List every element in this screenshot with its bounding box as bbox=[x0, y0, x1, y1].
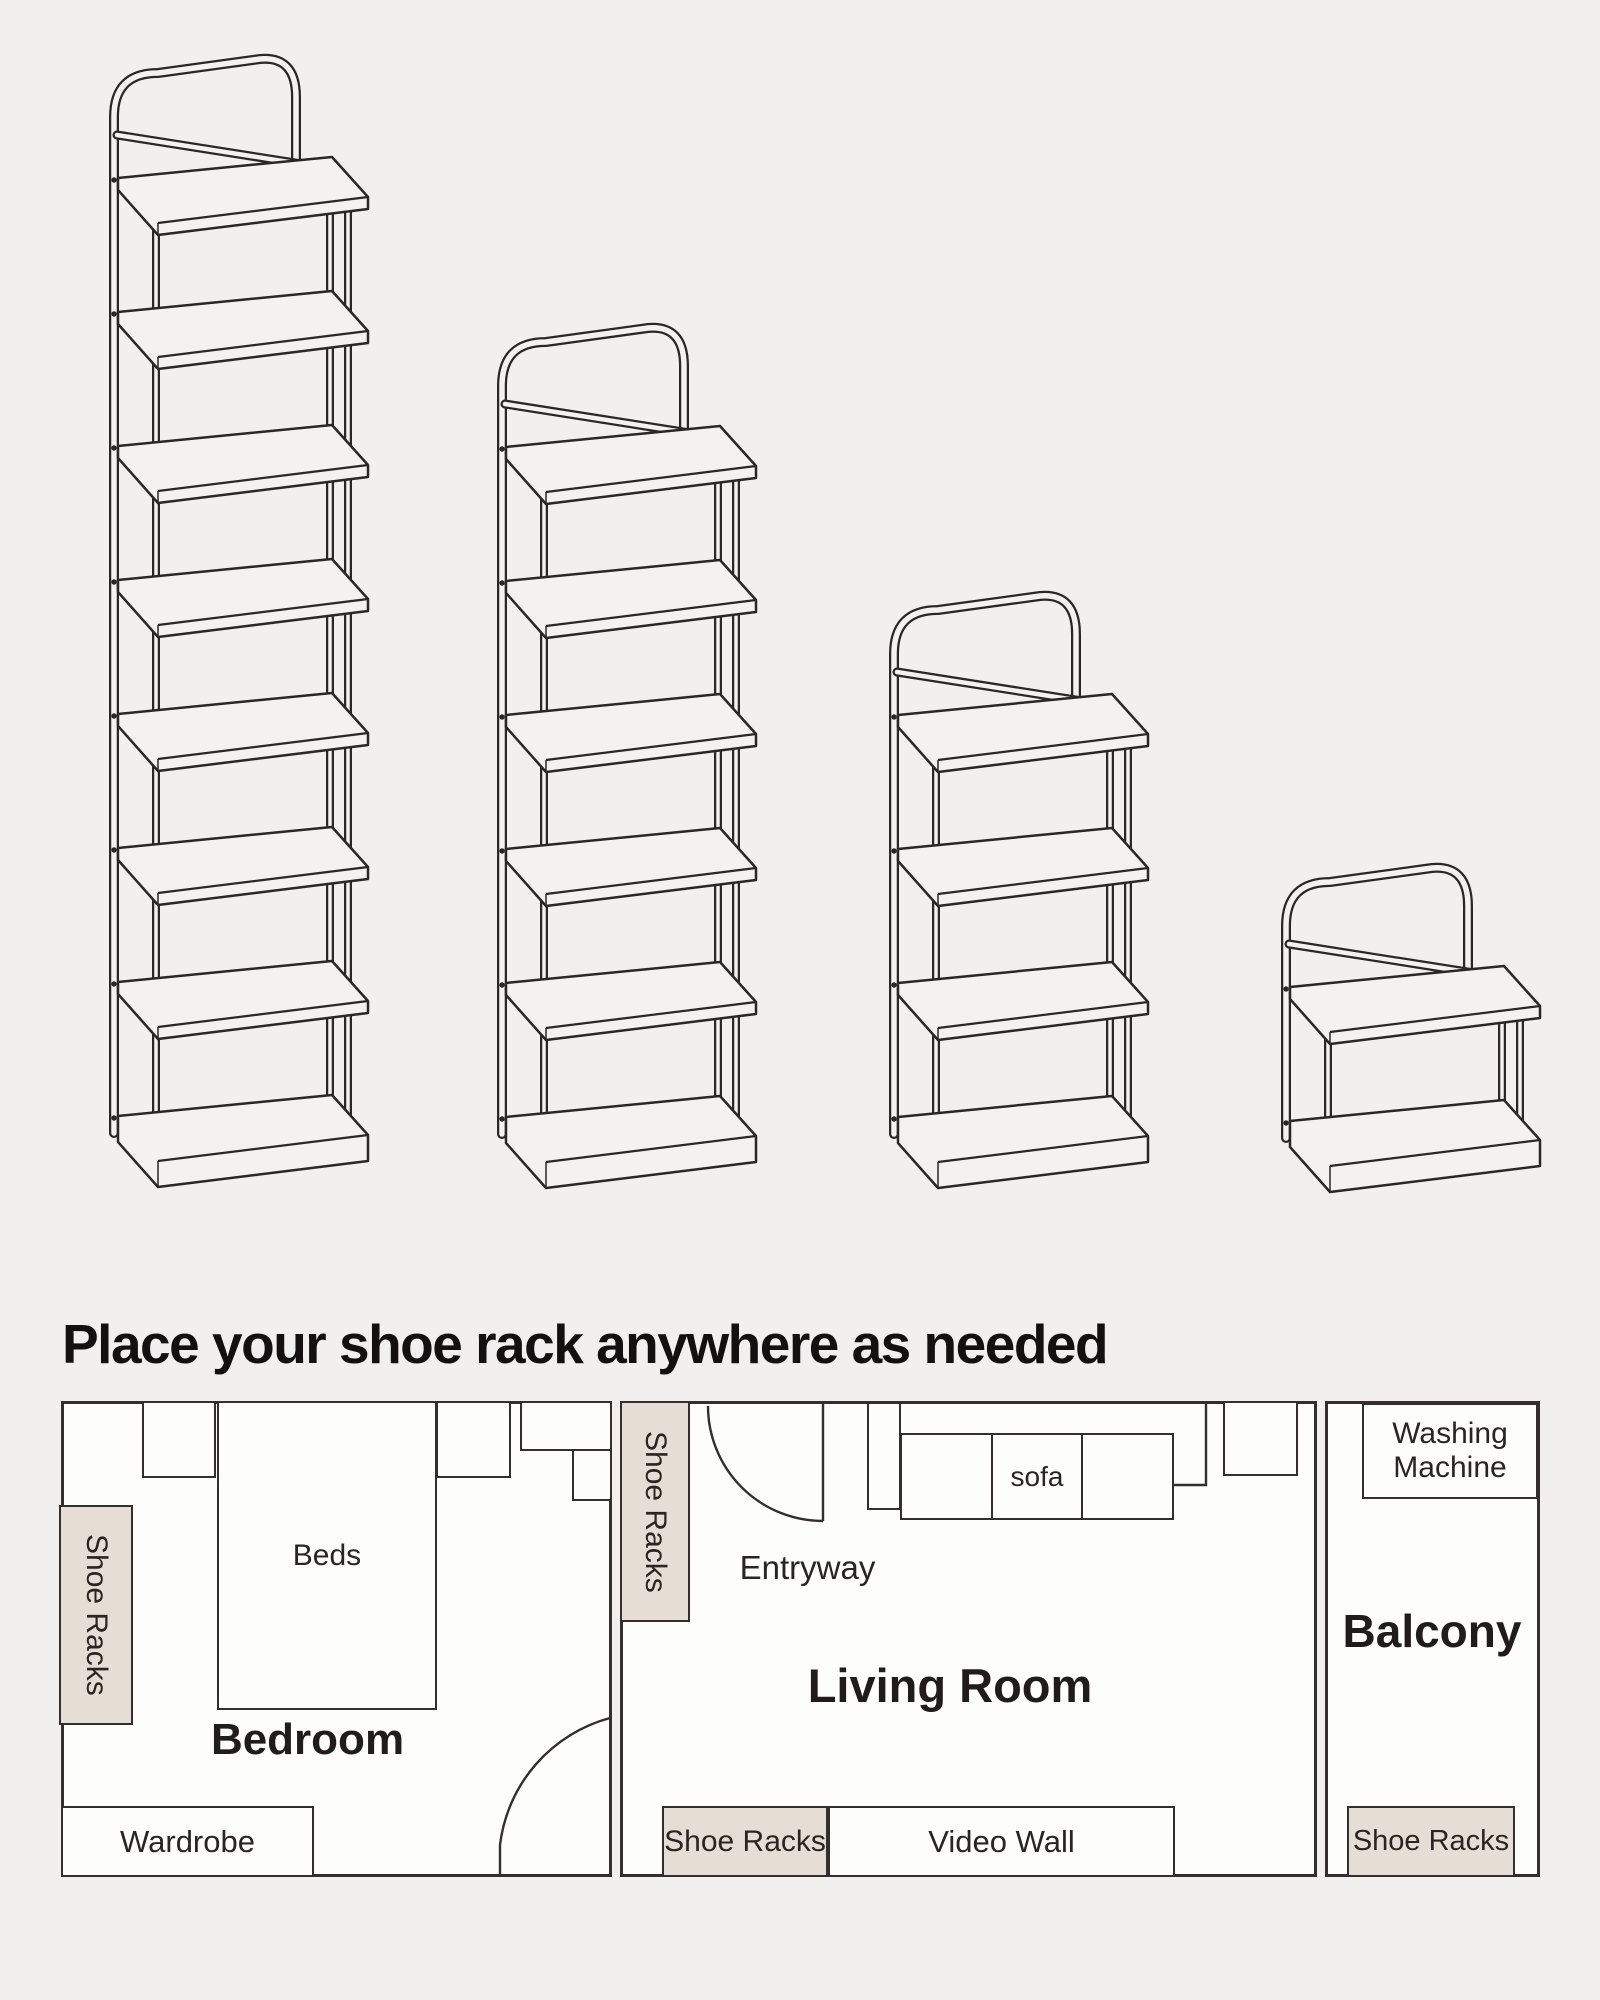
bedroom-label: Bedroom bbox=[180, 1718, 435, 1762]
beds: Beds bbox=[217, 1401, 437, 1710]
nightstand-right bbox=[436, 1401, 511, 1478]
living-shoe-racks-entry: Shoe Racks bbox=[620, 1401, 690, 1622]
shoe-rack-8-tier bbox=[111, 59, 368, 1187]
nightstand-left bbox=[142, 1401, 216, 1478]
bedroom-closet-upper bbox=[520, 1401, 612, 1451]
bedroom-shoe-racks-label: Shoe Racks bbox=[79, 1534, 113, 1696]
balcony-label: Balcony bbox=[1332, 1608, 1532, 1654]
living-shoe-racks-tv: Shoe Racks bbox=[662, 1806, 828, 1877]
balcony-shoe-racks: Shoe Racks bbox=[1347, 1806, 1515, 1877]
sofa-side-table-left bbox=[867, 1402, 901, 1510]
headline: Place your shoe rack anywhere as needed bbox=[62, 1312, 1107, 1376]
living-shoe-racks-entry-label: Shoe Racks bbox=[638, 1431, 672, 1593]
bedroom-closet-lower bbox=[572, 1449, 612, 1501]
sofa: sofa bbox=[900, 1433, 1174, 1520]
bedroom-shoe-racks: Shoe Racks bbox=[59, 1505, 133, 1725]
sofa-seat-left bbox=[902, 1435, 991, 1518]
sofa-side-table-right bbox=[1223, 1401, 1298, 1476]
sofa-seat-middle: sofa bbox=[991, 1435, 1084, 1518]
wardrobe: Wardrobe bbox=[61, 1806, 314, 1877]
shoe-rack-4-tier bbox=[891, 596, 1148, 1188]
shoe-rack-infographic: Place your shoe rack anywhere as needed … bbox=[0, 0, 1600, 2000]
washing-machine: Washing Machine bbox=[1362, 1403, 1538, 1499]
balcony-shoe-racks-label: Shoe Racks bbox=[1353, 1826, 1509, 1856]
entryway-label: Entryway bbox=[710, 1548, 905, 1588]
sofa-label: sofa bbox=[1011, 1461, 1064, 1493]
shoe-racks-illustration bbox=[0, 0, 1600, 1260]
beds-label: Beds bbox=[293, 1539, 361, 1573]
washing-machine-label: Washing Machine bbox=[1364, 1417, 1536, 1484]
wardrobe-label: Wardrobe bbox=[120, 1824, 255, 1860]
shoe-rack-2-tier bbox=[1283, 868, 1540, 1192]
video-wall-label: Video Wall bbox=[928, 1824, 1074, 1860]
living-shoe-racks-tv-label: Shoe Racks bbox=[664, 1826, 826, 1858]
shoe-rack-6-tier bbox=[499, 328, 756, 1188]
living-room-label: Living Room bbox=[795, 1660, 1105, 1710]
video-wall: Video Wall bbox=[828, 1806, 1175, 1877]
sofa-seat-right bbox=[1083, 1435, 1172, 1518]
